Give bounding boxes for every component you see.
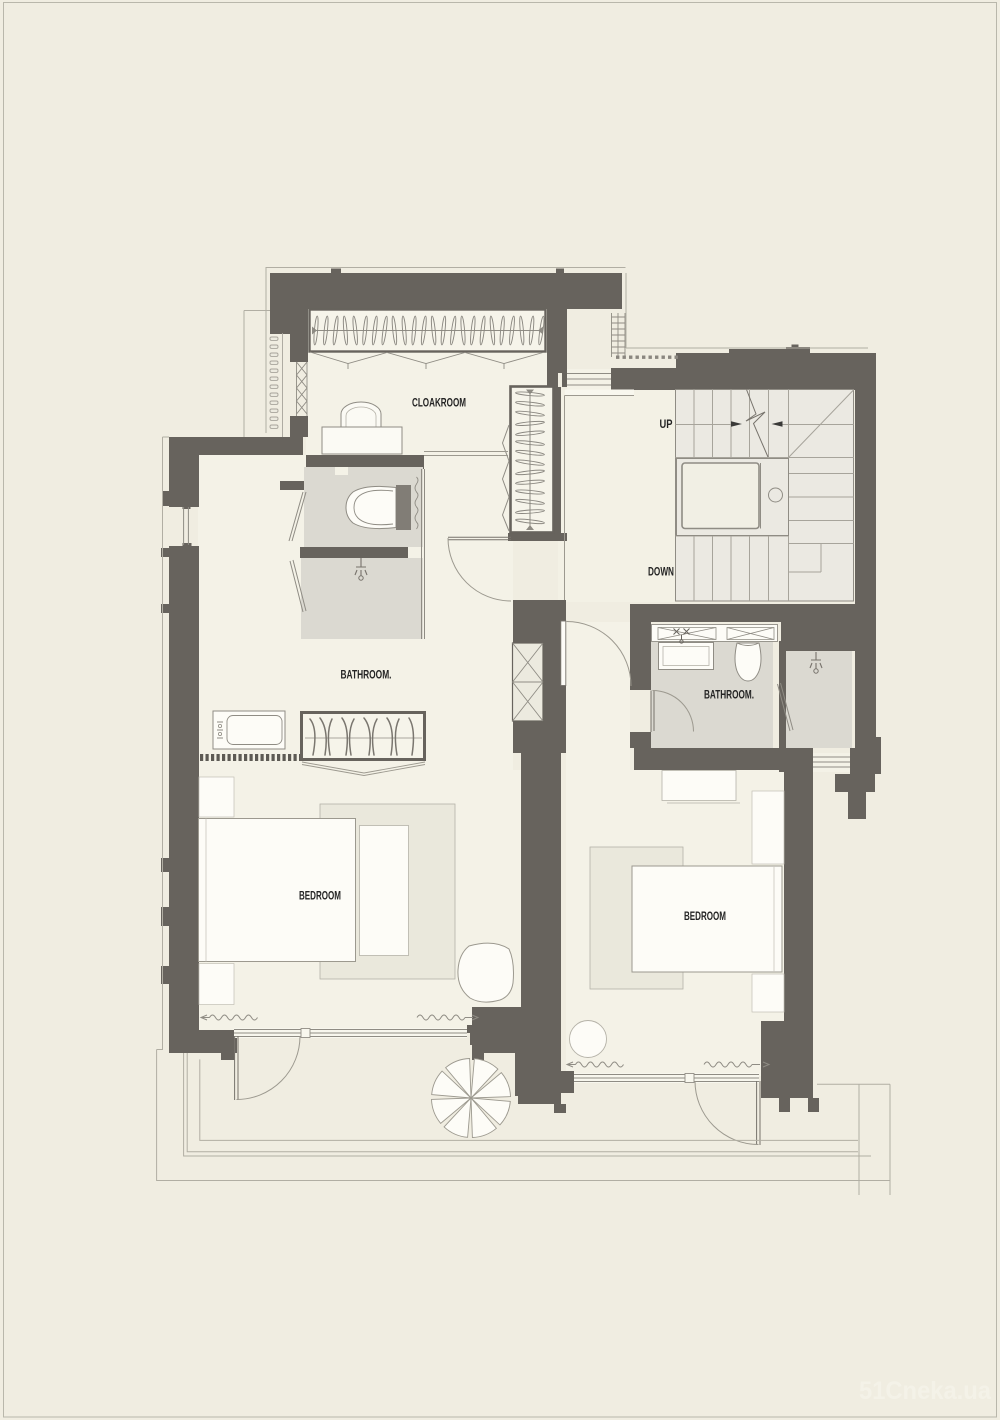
svg-text:DOWN: DOWN: [648, 567, 674, 579]
svg-text:BATHROOM.: BATHROOM.: [704, 690, 754, 702]
svg-text:UP: UP: [660, 419, 673, 431]
svg-text:51Cneka.ua: 51Cneka.ua: [859, 1377, 992, 1405]
svg-text:BATHROOM.: BATHROOM.: [341, 670, 392, 682]
svg-text:CLOAKROOM: CLOAKROOM: [412, 398, 466, 410]
svg-text:BEDROOM: BEDROOM: [299, 891, 341, 903]
svg-text:BEDROOM: BEDROOM: [684, 911, 726, 923]
